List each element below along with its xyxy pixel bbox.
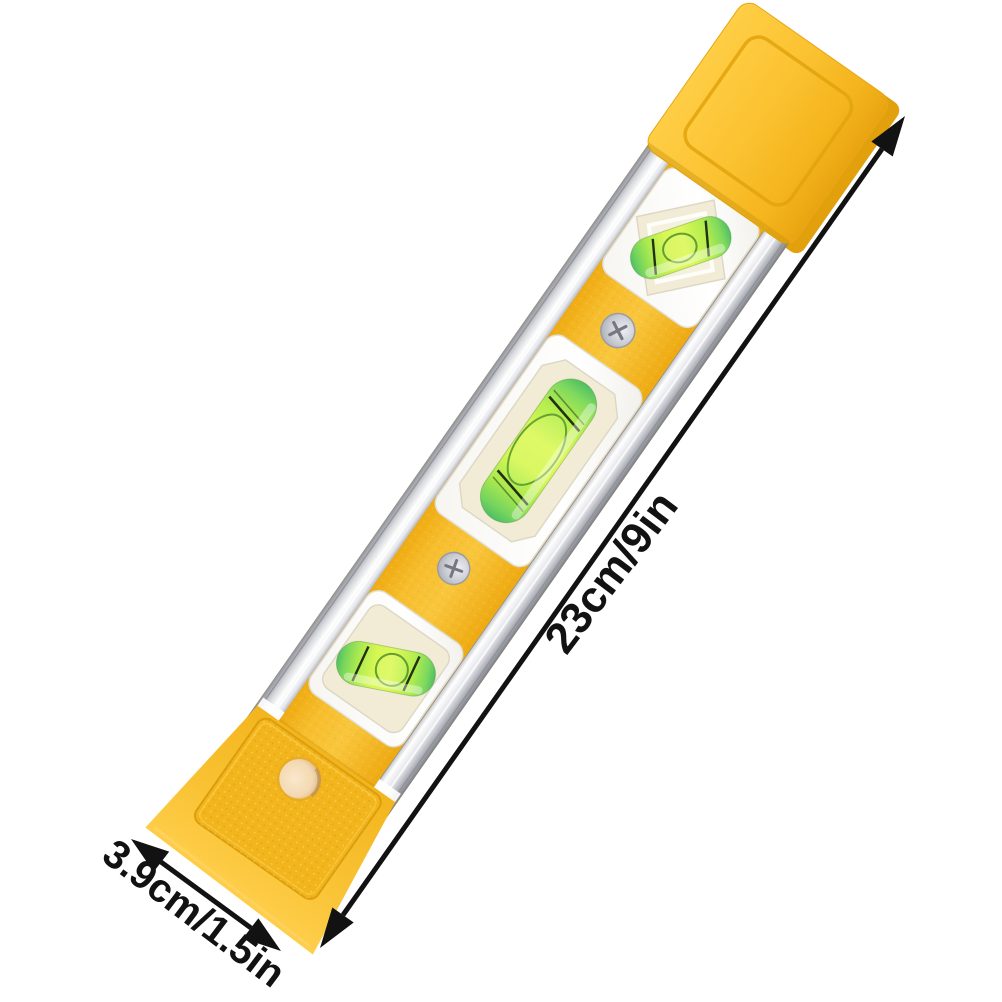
product-photo-canvas: 23cm/9in 3.9cm/1.5in	[0, 0, 1002, 1002]
product-photo: 23cm/9in 3.9cm/1.5in	[0, 0, 1002, 1002]
spirit-level	[141, 0, 905, 954]
